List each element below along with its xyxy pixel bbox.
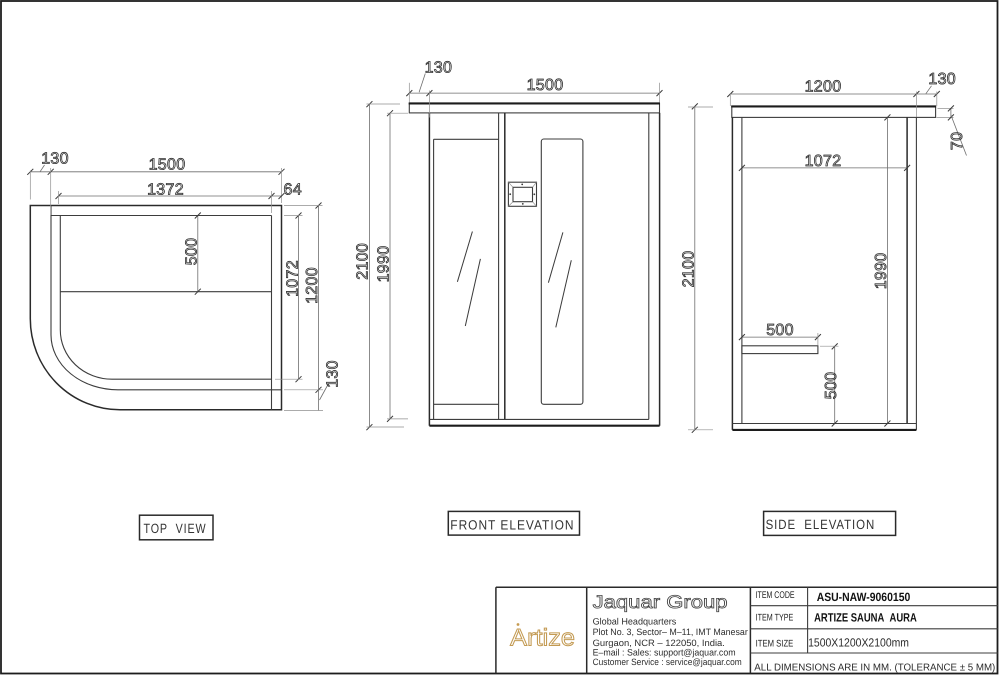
- svg-text:500: 500: [184, 238, 201, 266]
- svg-text:1500: 1500: [149, 157, 186, 174]
- svg-text:500: 500: [766, 322, 794, 339]
- svg-text:1990: 1990: [873, 253, 890, 290]
- svg-text:1200: 1200: [805, 79, 842, 96]
- svg-text:Artize: Artize: [510, 625, 575, 652]
- svg-text:ITEM TYPE: ITEM TYPE: [756, 612, 794, 623]
- svg-text:Global Headquarters: Global Headquarters: [593, 617, 677, 627]
- svg-text:130: 130: [928, 71, 956, 88]
- svg-text:E–mail : Sales: support@jaquar: E–mail : Sales: support@jaquar.com: [593, 648, 736, 658]
- svg-text:1500: 1500: [527, 77, 564, 94]
- svg-text:130: 130: [425, 60, 453, 77]
- svg-text:SIDE ELEVATION: SIDE ELEVATION: [766, 517, 876, 532]
- svg-text:Jaquar Group: Jaquar Group: [593, 592, 728, 612]
- svg-text:FRONT ELEVATION: FRONT ELEVATION: [450, 517, 574, 532]
- svg-text:ALL DIMENSIONS ARE IN MM. (TOL: ALL DIMENSIONS ARE IN MM. (TOLERANCE ± 5…: [754, 663, 995, 674]
- svg-text:130: 130: [41, 151, 69, 168]
- svg-text:70: 70: [949, 132, 966, 150]
- svg-text:64: 64: [284, 182, 302, 199]
- svg-text:500: 500: [823, 372, 840, 400]
- svg-text:Customer Service : service@jaq: Customer Service : service@jaquar.com: [593, 657, 742, 667]
- svg-text:1200: 1200: [304, 267, 321, 304]
- svg-text:Gurgaon, NCR – 122050, India.: Gurgaon, NCR – 122050, India.: [593, 638, 725, 648]
- svg-text:Plot No. 3, Sector– M–11, IMT: Plot No. 3, Sector– M–11, IMT Manesar: [593, 627, 748, 637]
- svg-text:2100: 2100: [355, 243, 372, 280]
- svg-text:TOP VIEW: TOP VIEW: [144, 521, 207, 536]
- svg-text:1072: 1072: [805, 153, 842, 170]
- svg-text:1072: 1072: [284, 260, 301, 297]
- svg-text:130: 130: [325, 360, 342, 388]
- svg-text:ARTIZE SAUNA AURA: ARTIZE SAUNA AURA: [814, 611, 917, 625]
- svg-text:1500X1200X2100mm: 1500X1200X2100mm: [808, 635, 909, 649]
- svg-text:ASU-NAW-9060150: ASU-NAW-9060150: [817, 590, 911, 604]
- svg-text:ITEM SIZE: ITEM SIZE: [756, 638, 794, 649]
- svg-text:2100: 2100: [680, 251, 697, 288]
- svg-text:1990: 1990: [375, 246, 392, 283]
- svg-text:ITEM CODE: ITEM CODE: [756, 590, 795, 601]
